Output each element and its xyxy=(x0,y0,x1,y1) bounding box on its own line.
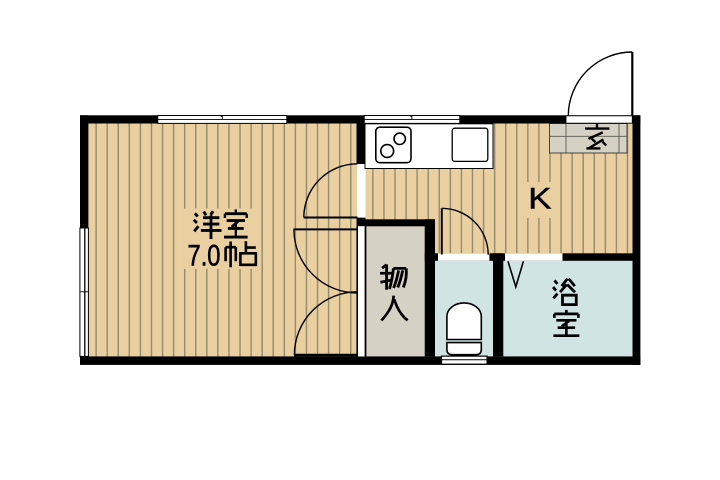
svg-text:7.0: 7.0 xyxy=(188,239,221,272)
svg-text:K: K xyxy=(528,182,552,215)
